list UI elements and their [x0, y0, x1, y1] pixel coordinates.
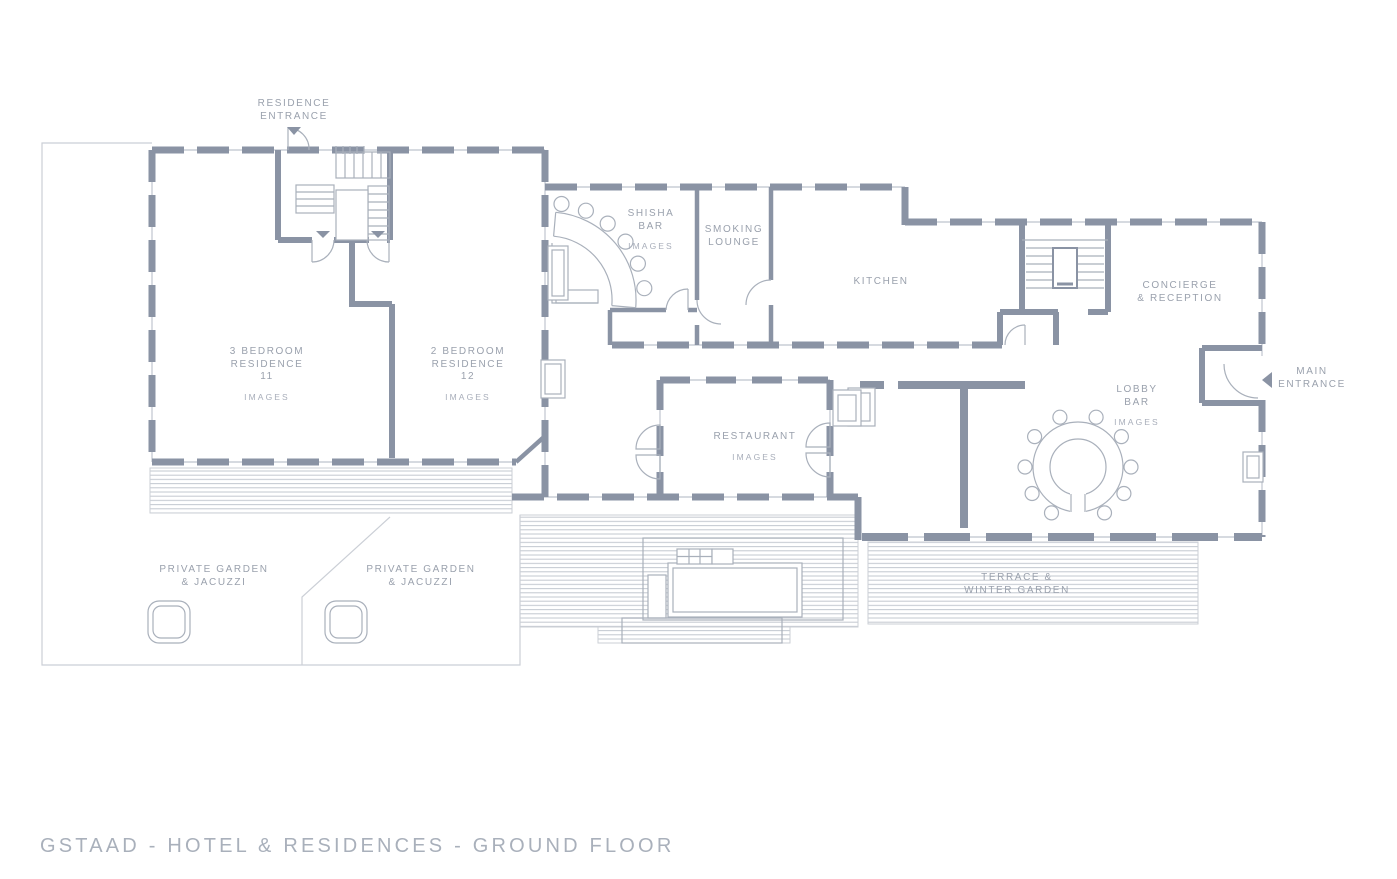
- residence-deck-hatch: [150, 468, 512, 513]
- label-line: RESTAURANT: [713, 431, 796, 444]
- label-line: BAR: [628, 221, 675, 234]
- label-line: ENTRANCE: [258, 111, 331, 124]
- bar-stool: [637, 281, 652, 296]
- label-line: MAIN: [1278, 366, 1346, 379]
- label-line: 11: [230, 371, 304, 384]
- label-line: KITCHEN: [853, 276, 908, 289]
- label-line: LOBBY: [1114, 384, 1160, 397]
- residence-12-images-link[interactable]: IMAGES: [431, 391, 505, 404]
- bar-stool: [1114, 430, 1128, 444]
- label-line: ENTRANCE: [1278, 379, 1346, 392]
- area-label-private-garden-east: PRIVATE GARDEN & JACUZZI: [366, 564, 475, 589]
- bar-stool: [1124, 460, 1138, 474]
- label-line: SHISHA: [628, 208, 675, 221]
- bar-stool: [1053, 410, 1067, 424]
- bar-stool: [554, 197, 569, 212]
- restaurant-images-link[interactable]: IMAGES: [713, 451, 796, 464]
- room-label-residence-12: 2 BEDROOM RESIDENCE 12 IMAGES: [431, 346, 505, 403]
- label-line: RESIDENCE: [258, 98, 331, 111]
- room-label-concierge-reception: CONCIERGE & RECEPTION: [1137, 280, 1222, 305]
- bar-stool: [1098, 506, 1112, 520]
- label-line: SMOKING: [705, 224, 763, 237]
- jacuzzi-east: [325, 601, 367, 643]
- label-line: PRIVATE GARDEN: [159, 564, 268, 577]
- bar-stool: [1089, 410, 1103, 424]
- residence-11-images-link[interactable]: IMAGES: [230, 391, 304, 404]
- room-label-residence-entrance: RESIDENCE ENTRANCE: [258, 98, 331, 123]
- label-line: 3 BEDROOM: [230, 346, 304, 359]
- bar-stool: [1025, 487, 1039, 501]
- bar-stool: [630, 256, 645, 271]
- label-line: BAR: [1114, 397, 1160, 410]
- label-line: 2 BEDROOM: [431, 346, 505, 359]
- door-swings: [288, 128, 1258, 479]
- label-line: LOUNGE: [705, 237, 763, 250]
- bar-stool: [578, 203, 593, 218]
- label-line: RESIDENCE: [230, 359, 304, 372]
- shisha-bar-images-link[interactable]: IMAGES: [628, 240, 675, 253]
- label-line: CONCIERGE: [1137, 280, 1222, 293]
- label-line: & RECEPTION: [1137, 293, 1222, 306]
- room-label-smoking-lounge: SMOKING LOUNGE: [705, 224, 763, 249]
- service-stairs: [1022, 240, 1108, 288]
- main-entrance-arrow-icon: [1262, 372, 1272, 388]
- jacuzzi-west: [148, 601, 190, 643]
- label-line: & JACUZZI: [366, 577, 475, 590]
- room-label-shisha-bar: SHISHA BAR IMAGES: [628, 208, 675, 253]
- pool-basin: [668, 563, 802, 617]
- area-label-private-garden-west: PRIVATE GARDEN & JACUZZI: [159, 564, 268, 589]
- pool-side-step: [648, 575, 666, 618]
- bar-stool: [600, 216, 615, 231]
- bar-stool: [1045, 506, 1059, 520]
- page-title: GSTAAD - HOTEL & RESIDENCES - GROUND FLO…: [40, 835, 674, 858]
- room-label-restaurant: RESTAURANT IMAGES: [713, 431, 796, 463]
- area-label-terrace-winter-garden: TERRACE & WINTER GARDEN: [964, 572, 1070, 597]
- label-line: PRIVATE GARDEN: [366, 564, 475, 577]
- label-line: 12: [431, 371, 505, 384]
- bar-stool: [1028, 430, 1042, 444]
- room-label-kitchen: KITCHEN: [853, 276, 908, 289]
- label-line: TERRACE &: [964, 572, 1070, 585]
- lobby-bar-images-link[interactable]: IMAGES: [1114, 416, 1160, 429]
- floor-plan-drawing: [0, 0, 1397, 879]
- elevator: [1053, 248, 1077, 288]
- pool-steps-hatch: [598, 627, 790, 643]
- bar-stool: [1117, 487, 1131, 501]
- label-line: WINTER GARDEN: [964, 585, 1070, 598]
- bar-stool: [1018, 460, 1032, 474]
- room-label-main-entrance: MAIN ENTRANCE: [1278, 366, 1346, 391]
- floor-plan-canvas: RESIDENCE ENTRANCE SHISHA BAR IMAGES SMO…: [0, 0, 1397, 879]
- label-line: & JACUZZI: [159, 577, 268, 590]
- pool-equipment-box: [712, 549, 733, 564]
- room-label-lobby-bar: LOBBY BAR IMAGES: [1114, 384, 1160, 429]
- residence-stairs: [296, 146, 390, 240]
- label-line: RESIDENCE: [431, 359, 505, 372]
- room-label-residence-11: 3 BEDROOM RESIDENCE 11 IMAGES: [230, 346, 304, 403]
- stair-door-arrow-icon: [316, 231, 330, 238]
